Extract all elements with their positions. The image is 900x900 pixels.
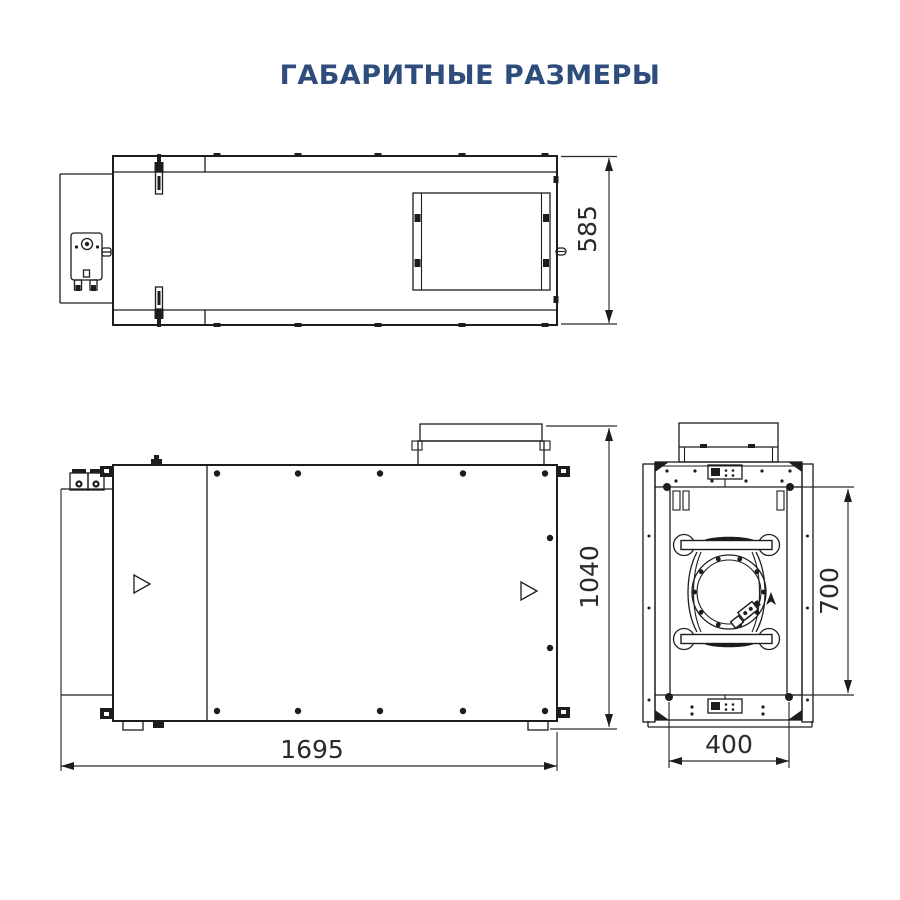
dim-label-585: 585 [573,205,602,253]
cable-gland [738,598,762,620]
dimensional-drawing-canvas: 585 [0,0,900,900]
dimensions-page: ГАБАРИТНЫЕ РАЗМЕРЫ [0,0,900,900]
dim-label-1695: 1695 [280,735,344,764]
top-view-access-panel [413,193,550,290]
front-view-rivets [214,470,553,714]
dim-label-1040: 1040 [575,545,604,609]
top-view [60,153,566,327]
dimension-top-depth: 585 [561,157,617,325]
fan-bolts [692,557,766,627]
side-view-top-band-screws [665,469,791,482]
dim-label-700: 700 [815,567,844,615]
side-view [643,423,813,727]
top-view-edge-screws [214,153,559,327]
front-view-duct [412,424,550,465]
side-view-bottom-bracket [708,695,742,713]
fan-inlet-circle [692,555,766,629]
dimension-front-length: 1695 [61,489,557,771]
side-view-corner-caps [655,462,802,720]
front-view-corner-brackets [100,466,570,719]
side-view-bottom-band-screws [690,705,764,715]
front-view-latch [151,455,162,465]
front-view [61,424,570,730]
fan-assembly [674,535,780,650]
top-view-latch-bottom [155,287,164,327]
airflow-arrow-icon [134,575,150,593]
damper-actuator [71,233,111,291]
side-view-base [648,721,812,727]
side-view-top-bracket [708,465,742,487]
terminal-boxes [70,469,104,490]
side-view-duct [679,423,778,462]
dim-label-400: 400 [705,730,753,759]
airflow-arrow-icon [521,582,537,600]
top-view-handle [556,248,566,255]
dimension-side-width: 400 [669,702,789,768]
top-view-latch-top [155,154,164,194]
direction-arrow-icon [766,592,776,605]
front-view-inlet-flange [61,489,113,695]
front-view-feet [123,721,548,730]
